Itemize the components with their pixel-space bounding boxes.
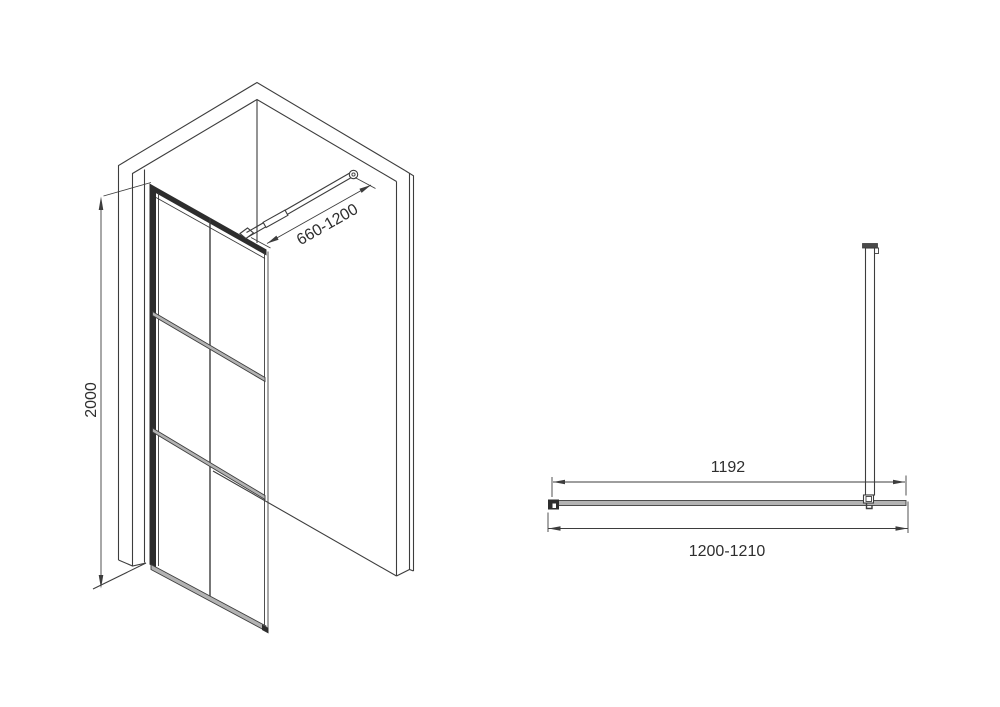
- plan-support-bar-wall-cap: [863, 244, 878, 249]
- plan-view: 1192 1200-1210: [548, 244, 908, 561]
- plan-support-bar: [863, 244, 879, 509]
- shower-screen-drawing: 2000 660-1200: [0, 0, 1000, 707]
- room-walls: [93, 83, 414, 590]
- dimension-glass-width: 1192: [552, 459, 906, 497]
- plan-glass-panel: [548, 500, 906, 510]
- dimension-overall-width-label: 1200-1210: [689, 543, 766, 560]
- glass-top-frame: [150, 184, 267, 256]
- dimension-glass-width-arrow-left: [553, 480, 565, 485]
- support-bar: [240, 170, 358, 238]
- plan-wall-profile-notch: [553, 504, 557, 509]
- perspective-view: 2000 660-1200: [83, 83, 413, 634]
- glass-panel: [150, 184, 269, 634]
- dimension-height-arrow-up: [99, 197, 104, 211]
- plan-support-bar-body: [866, 248, 875, 495]
- glass-bottom-frame: [151, 565, 266, 632]
- technical-drawing-page: 2000 660-1200: [0, 0, 1000, 707]
- dimension-glass-width-arrow-right: [893, 480, 905, 485]
- wall-profile-bar: [150, 184, 157, 569]
- dimension-height-extension: [104, 183, 152, 197]
- support-bar-wall-flange: [349, 170, 357, 178]
- plan-glass-bar: [559, 501, 907, 506]
- dimension-overall-width-arrow-left: [549, 526, 561, 531]
- dimension-support-bar-arrow-right: [359, 185, 371, 193]
- glass-horizontal-mullion-1: [153, 312, 266, 382]
- floor-right-wall-line: [213, 471, 397, 576]
- support-bar-sleeve: [263, 210, 288, 227]
- dimension-support-bar-arrow-left: [267, 236, 279, 244]
- dimension-support-bar-extension-right: [355, 178, 376, 189]
- glass-horizontal-mullion-2: [153, 428, 266, 500]
- dimension-height-label: 2000: [83, 382, 100, 418]
- dimension-support-bar: 660-1200: [251, 178, 376, 250]
- dimension-overall-width: 1200-1210: [548, 502, 908, 561]
- dimension-overall-width-arrow-right: [896, 526, 908, 531]
- dimension-support-bar-label: 660-1200: [294, 201, 361, 249]
- right-wall-bottom-edge: [397, 570, 414, 577]
- dimension-height: 2000: [83, 183, 151, 589]
- dimension-glass-width-label: 1192: [711, 459, 746, 476]
